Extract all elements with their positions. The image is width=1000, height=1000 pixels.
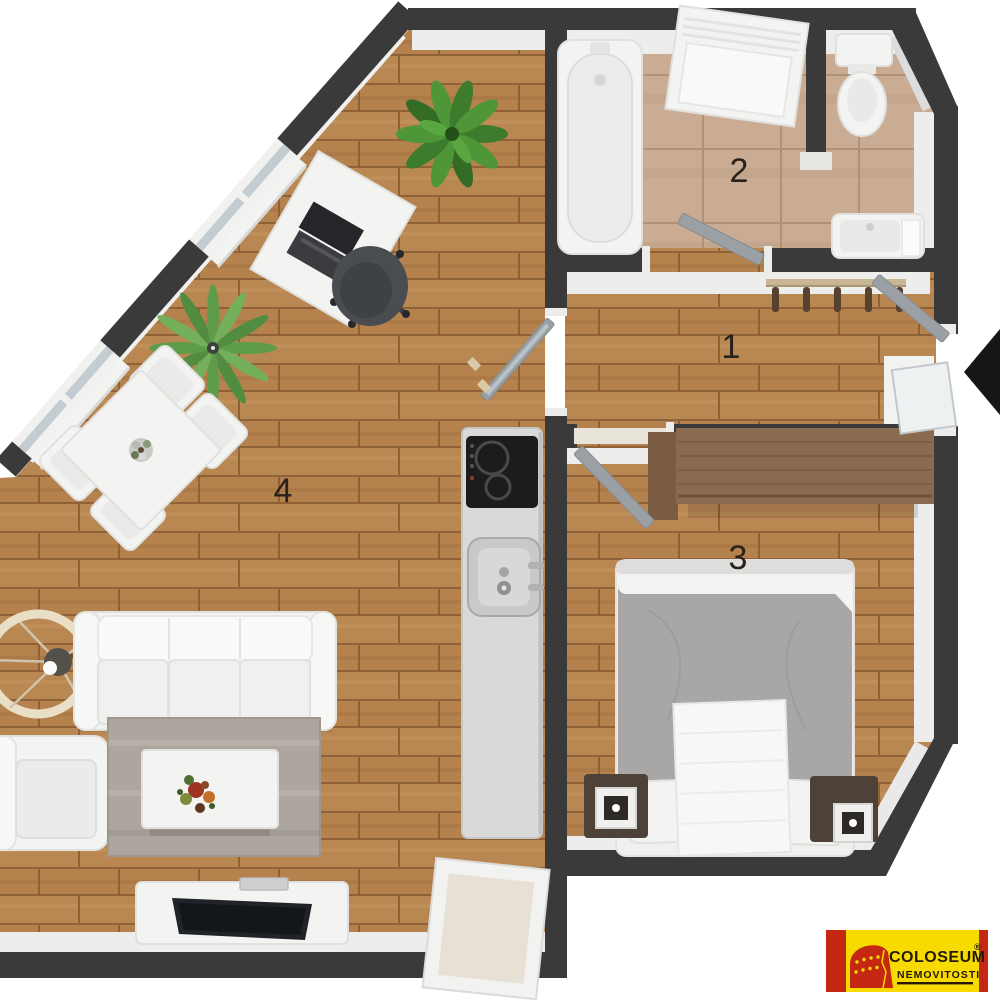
floor-plan-svg: 1 2 3 4 COLOSEUM ® NEMOVITOSTI	[0, 0, 1000, 1000]
wc-partition	[806, 28, 826, 154]
colosseum-icon	[850, 945, 893, 988]
agency-logo: COLOSEUM ® NEMOVITOSTI	[826, 930, 988, 992]
sink-faucet	[499, 567, 509, 577]
wc-partition-cap	[800, 152, 832, 170]
armchair	[0, 736, 108, 850]
bathtub	[558, 40, 642, 254]
sofa	[74, 612, 336, 732]
logo-registered-mark: ®	[974, 942, 981, 952]
floor-plan-image: 1 2 3 4 COLOSEUM ® NEMOVITOSTI	[0, 0, 1000, 1000]
tv-stand	[136, 878, 348, 944]
diagonal-wall-3	[6, 450, 22, 468]
nightstand-left	[584, 774, 648, 838]
bathtub-drain	[594, 74, 606, 86]
cooktop	[466, 436, 538, 508]
wardrobe	[648, 428, 934, 520]
toilet-cistern	[836, 34, 892, 66]
room-label-bathroom: 2	[730, 152, 749, 190]
flower-centerpiece	[129, 438, 153, 462]
coffee-table	[142, 750, 278, 836]
bathtub-faucet	[590, 42, 610, 54]
wash-basin	[832, 214, 924, 258]
shower-unit	[665, 6, 808, 127]
right-wall-upper	[934, 106, 958, 334]
entrance-sidelight	[892, 362, 956, 433]
room-label-living-room: 4	[274, 472, 293, 510]
logo-underline	[897, 982, 973, 984]
room-label-bedroom: 3	[729, 539, 748, 577]
right-wall-lower	[934, 426, 958, 744]
logo-brand-text: COLOSEUM	[889, 949, 985, 966]
balcony-door	[423, 858, 550, 999]
logo-subtitle-text: NEMOVITOSTI	[897, 969, 980, 981]
sink	[468, 538, 544, 616]
room-label-hall: 1	[722, 328, 741, 366]
top-wall	[408, 8, 916, 30]
bed-runner	[673, 700, 790, 856]
inner-wall-lower	[545, 408, 567, 850]
kitchen-counter	[462, 428, 544, 838]
nightstand-right	[810, 776, 878, 842]
